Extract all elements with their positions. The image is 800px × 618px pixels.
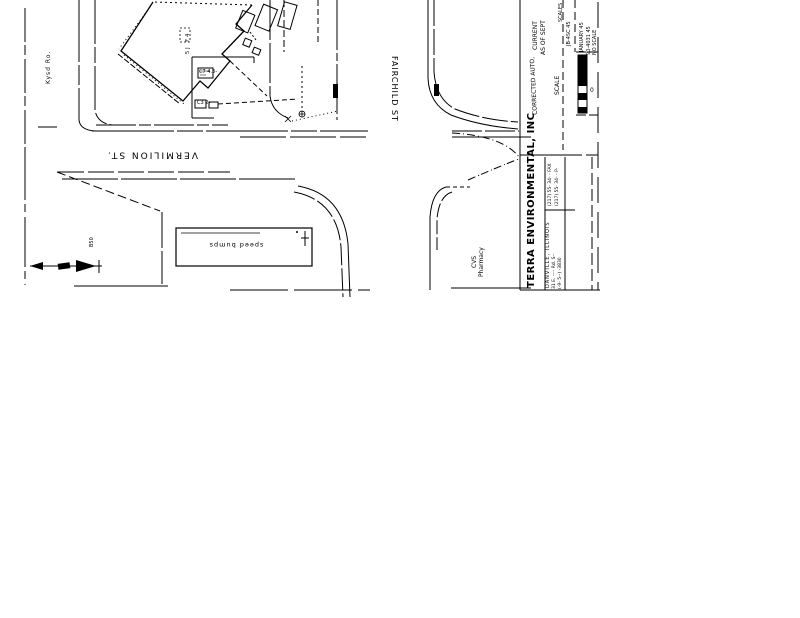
side-road-label: Kysd Ro.	[46, 51, 52, 84]
company-name: TERRA ENVIRONMENTAL, INC	[527, 112, 538, 288]
vermilion-street-lines	[92, 125, 531, 137]
b50-label: B50	[90, 237, 95, 247]
north-arrow-icon	[30, 260, 102, 273]
titleblock-ref1: JB-4SC 45	[567, 21, 572, 46]
titleblock-no-scale: NO SCALE	[593, 30, 598, 55]
fairchild-street-label: FAIRCHILD ST	[390, 56, 398, 122]
scanned-site-plan: Kysd Ro. 5J F4 C7 4.3- C3 2- VERMILION S…	[0, 0, 800, 618]
titleblock-current: CURRENT	[533, 21, 539, 50]
scale-label: SCALE	[555, 76, 561, 95]
company-city: DANVILLE, ILLINOIS	[546, 221, 551, 288]
annotation-c3: C3 2-	[197, 101, 210, 106]
lower-left-block	[57, 172, 350, 297]
scale-label-2: SCALES	[559, 3, 564, 22]
titleblock-date: JANUARY 45	[580, 22, 585, 52]
building-label: 5J F4	[186, 32, 191, 54]
cvs-label-line2: Pharmacy	[479, 247, 485, 277]
titleblock-as-of: AS OF SEPT	[541, 20, 547, 55]
parking-label: speed bumps	[198, 241, 274, 248]
shed-structures	[236, 2, 297, 55]
company-fax: (217) 55- 34- - FAX	[549, 164, 554, 206]
cvs-block-curves	[430, 159, 519, 290]
company-address-line2: (-9- 5--) -3830	[559, 257, 564, 289]
building-outline	[118, 0, 338, 120]
annotation-c7: C7 4.3-	[199, 70, 217, 75]
company-phone: (217) 55- 34- - P-	[556, 168, 561, 206]
site-plan-linework	[0, 0, 800, 618]
company-address-line1: 31 E. ---- Rd. S--	[553, 253, 558, 289]
scale-zero-mark: 0	[590, 88, 594, 94]
vermilion-street-label: VERMILION ST.	[96, 149, 208, 158]
scale-bar	[578, 55, 587, 113]
fairchild-corner-curves	[428, 0, 519, 157]
